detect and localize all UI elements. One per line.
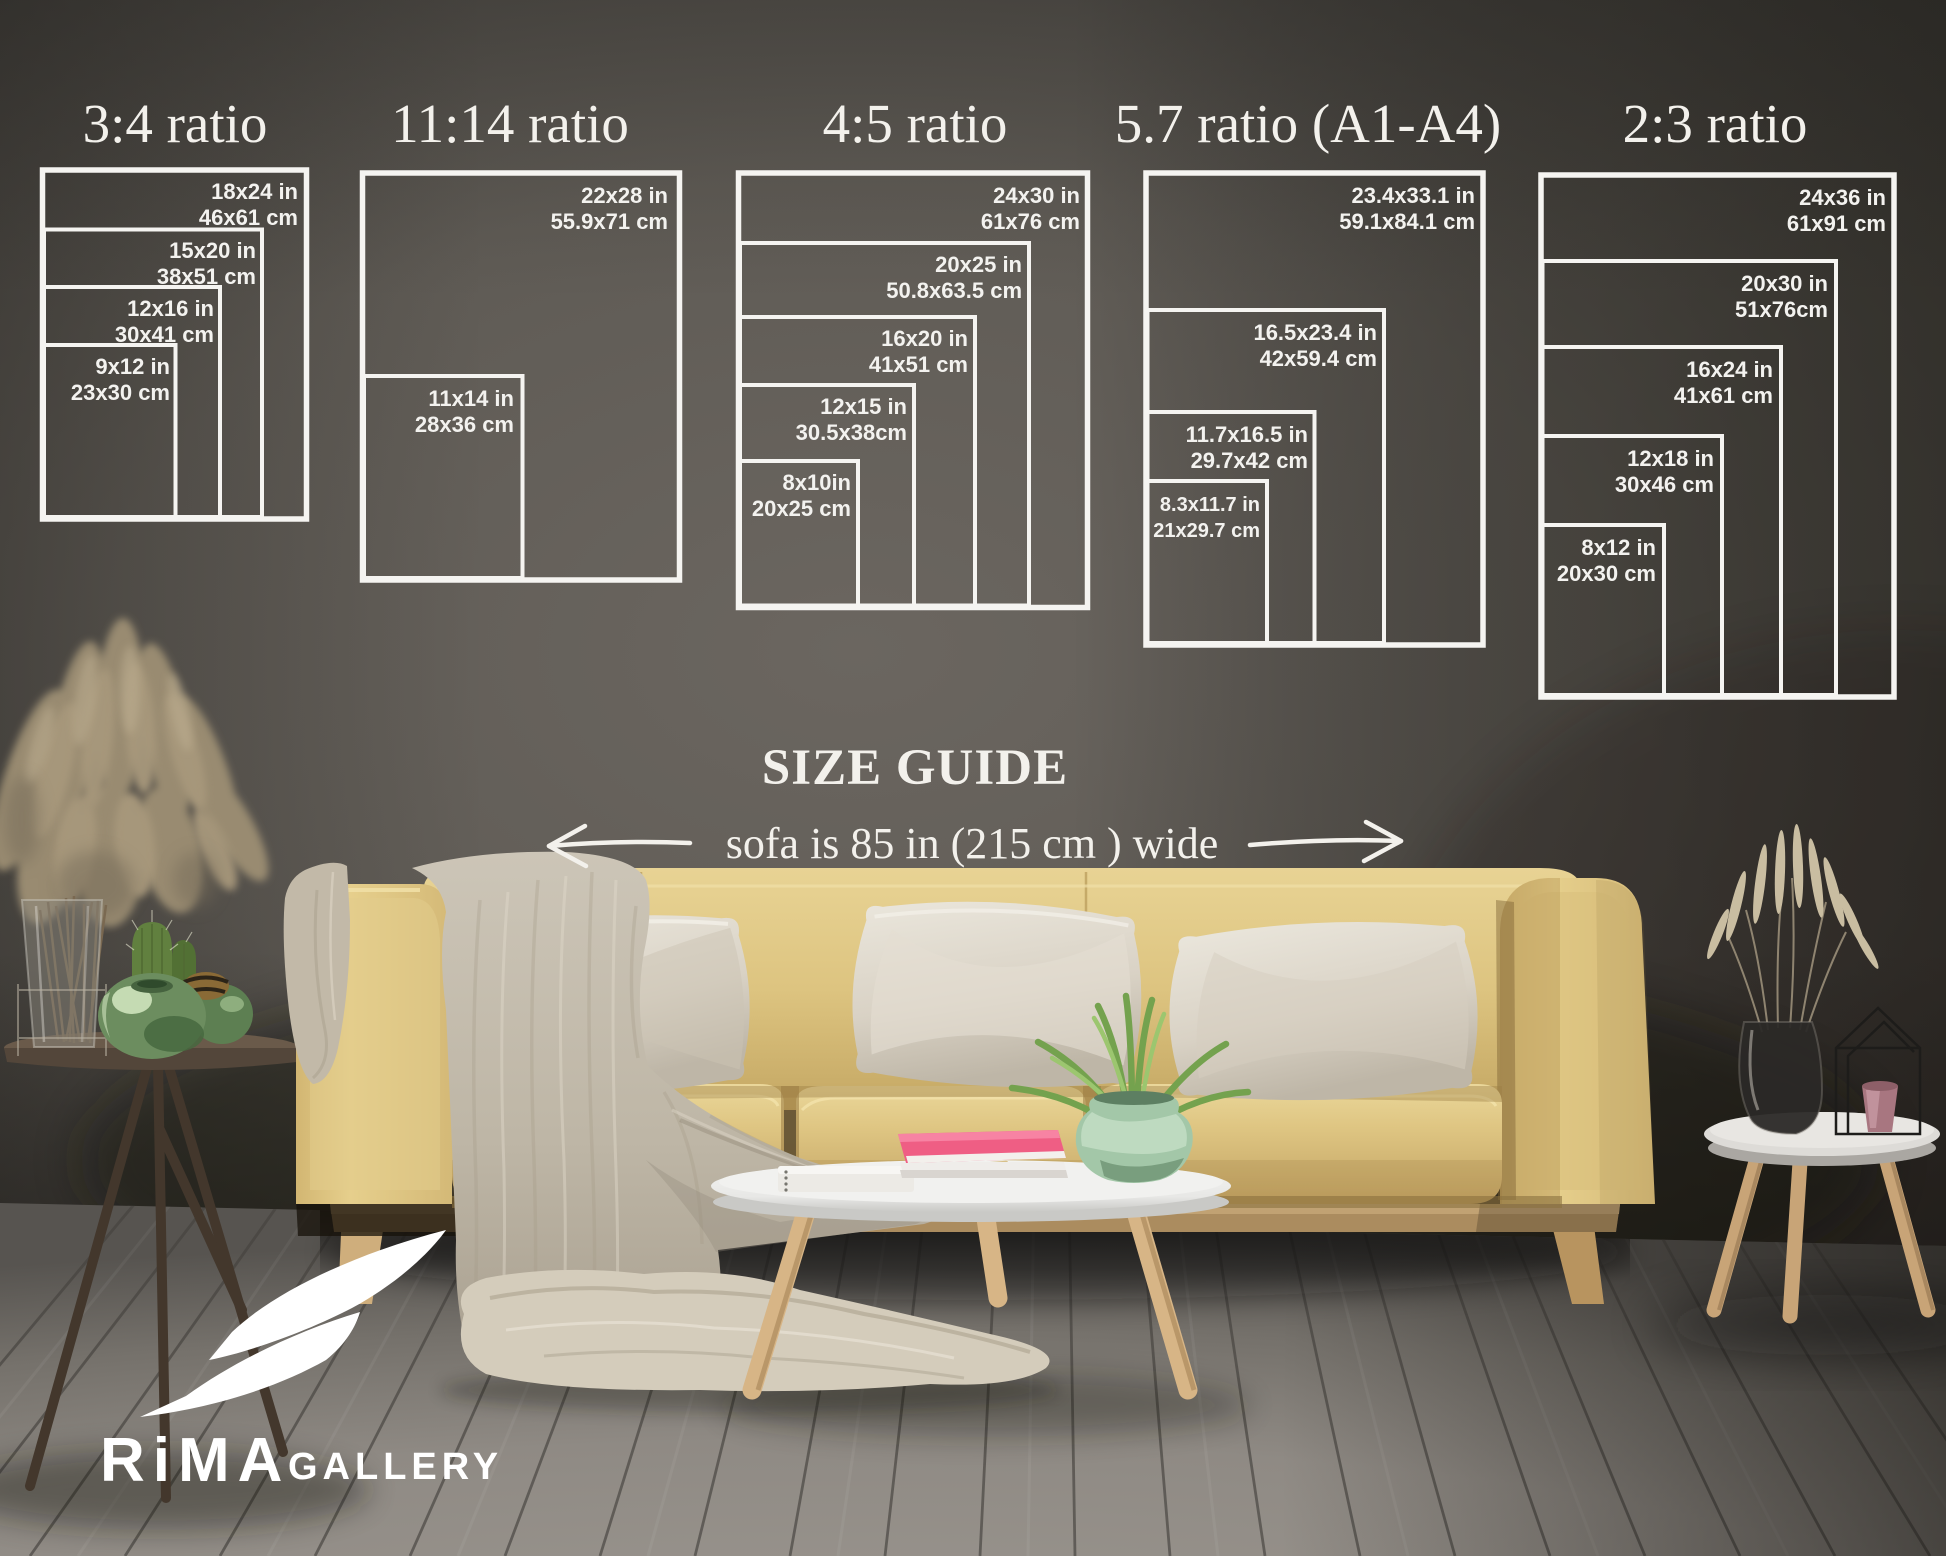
svg-text:20x30 cm: 20x30 cm: [1557, 561, 1656, 586]
svg-text:20x25 cm: 20x25 cm: [752, 496, 851, 521]
svg-text:3:4 ratio: 3:4 ratio: [83, 93, 268, 154]
svg-text:30x46 cm: 30x46 cm: [1615, 472, 1714, 497]
svg-text:50.8x63.5 cm: 50.8x63.5 cm: [886, 278, 1022, 303]
svg-text:22x28 in: 22x28 in: [581, 183, 668, 208]
svg-text:11x14 in: 11x14 in: [428, 386, 514, 411]
svg-text:59.1x84.1 cm: 59.1x84.1 cm: [1339, 209, 1475, 234]
svg-text:sofa is 85 in (215 cm ) wide: sofa is 85 in (215 cm ) wide: [726, 819, 1218, 868]
svg-text:23x30 cm: 23x30 cm: [71, 380, 170, 405]
svg-text:30x41 cm: 30x41 cm: [115, 322, 214, 347]
svg-text:8.3x11.7 in: 8.3x11.7 in: [1160, 494, 1260, 516]
svg-text:16x20 in: 16x20 in: [881, 326, 968, 351]
svg-text:23.4x33.1 in: 23.4x33.1 in: [1351, 183, 1475, 208]
svg-text:12x18 in: 12x18 in: [1627, 446, 1714, 471]
svg-text:41x51 cm: 41x51 cm: [869, 352, 968, 377]
svg-text:RiMA: RiMA: [100, 1426, 290, 1495]
svg-text:9x12 in: 9x12 in: [95, 354, 170, 379]
svg-text:20x30 in: 20x30 in: [1741, 271, 1828, 296]
svg-text:61x76 cm: 61x76 cm: [981, 209, 1080, 234]
svg-text:51x76cm: 51x76cm: [1735, 297, 1828, 322]
svg-text:4:5 ratio: 4:5 ratio: [823, 93, 1008, 154]
svg-text:2:3 ratio: 2:3 ratio: [1623, 93, 1808, 154]
svg-text:29.7x42 cm: 29.7x42 cm: [1191, 448, 1308, 473]
svg-text:12x16 in: 12x16 in: [127, 296, 214, 321]
svg-text:42x59.4 cm: 42x59.4 cm: [1260, 346, 1377, 371]
svg-text:20x25 in: 20x25 in: [935, 252, 1022, 277]
svg-text:11:14 ratio: 11:14 ratio: [391, 93, 629, 154]
svg-text:55.9x71 cm: 55.9x71 cm: [551, 209, 668, 234]
svg-text:30.5x38cm: 30.5x38cm: [796, 420, 907, 445]
svg-text:16x24 in: 16x24 in: [1686, 357, 1773, 382]
svg-text:38x51 cm: 38x51 cm: [157, 264, 256, 289]
svg-text:24x30 in: 24x30 in: [993, 183, 1080, 208]
svg-text:5.7 ratio (A1-A4): 5.7 ratio (A1-A4): [1115, 93, 1501, 154]
svg-text:28x36 cm: 28x36 cm: [415, 412, 514, 437]
svg-text:21x29.7 cm: 21x29.7 cm: [1153, 520, 1260, 542]
svg-text:41x61 cm: 41x61 cm: [1674, 383, 1773, 408]
svg-text:46x61 cm: 46x61 cm: [199, 205, 298, 230]
svg-text:18x24 in: 18x24 in: [211, 179, 298, 204]
svg-text:8x12 in: 8x12 in: [1581, 535, 1656, 560]
svg-text:15x20 in: 15x20 in: [169, 238, 256, 263]
svg-text:11.7x16.5 in: 11.7x16.5 in: [1186, 422, 1308, 447]
svg-text:61x91 cm: 61x91 cm: [1787, 211, 1886, 236]
svg-text:8x10in: 8x10in: [783, 470, 852, 495]
svg-text:SIZE GUIDE: SIZE GUIDE: [762, 740, 1068, 796]
svg-text:16.5x23.4 in: 16.5x23.4 in: [1253, 320, 1377, 345]
svg-text:24x36 in: 24x36 in: [1799, 185, 1886, 210]
svg-text:GALLERY: GALLERY: [288, 1446, 503, 1488]
svg-text:12x15 in: 12x15 in: [820, 394, 907, 419]
